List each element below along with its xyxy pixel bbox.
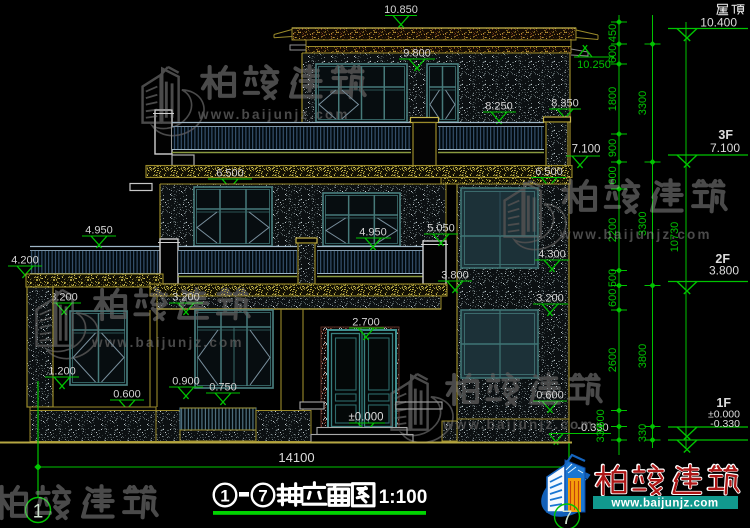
svg-text:14100: 14100 [278, 450, 314, 465]
svg-text:2600: 2600 [607, 348, 619, 372]
svg-text:0.600: 0.600 [113, 389, 141, 401]
svg-text:3.800: 3.800 [441, 270, 469, 282]
svg-text:2.700: 2.700 [352, 317, 380, 329]
svg-text:www.baijunjz.com: www.baijunjz.com [559, 227, 712, 242]
svg-text:8.250: 8.250 [485, 101, 513, 113]
svg-text:1800: 1800 [607, 87, 619, 111]
svg-text:900: 900 [607, 139, 619, 157]
svg-text:0.900: 0.900 [172, 376, 200, 388]
svg-text:500: 500 [607, 269, 619, 287]
svg-text:4.300: 4.300 [538, 249, 566, 261]
svg-text:www.baijunjz.com: www.baijunjz.com [197, 107, 350, 122]
svg-text:±0.000: ±0.000 [348, 412, 383, 424]
svg-text:4.950: 4.950 [359, 227, 387, 239]
svg-text:3300: 3300 [637, 91, 649, 115]
svg-text:450: 450 [607, 24, 619, 42]
svg-text:1.200: 1.200 [48, 366, 76, 378]
svg-text:6.500: 6.500 [535, 166, 563, 178]
svg-text:7: 7 [258, 487, 267, 506]
svg-text:8.350: 8.350 [551, 98, 579, 110]
svg-text:4.950: 4.950 [85, 225, 113, 237]
svg-text:4.200: 4.200 [11, 255, 39, 267]
svg-text:www.baijunjz.com: www.baijunjz.com [610, 498, 718, 510]
svg-text:600: 600 [607, 45, 619, 63]
svg-text:3.200: 3.200 [536, 293, 564, 305]
svg-text:7.100: 7.100 [710, 141, 740, 155]
svg-text:www.baijunjz.com: www.baijunjz.com [91, 335, 244, 350]
svg-text:www.baijunjz.com: www.baijunjz.com [442, 417, 595, 432]
svg-text:6.500: 6.500 [216, 168, 244, 180]
svg-text:9.800: 9.800 [403, 48, 431, 60]
svg-text:-0.330: -0.330 [710, 418, 740, 430]
svg-text:7: 7 [562, 508, 573, 528]
svg-text:7.100: 7.100 [572, 144, 601, 156]
svg-text:10.850: 10.850 [384, 4, 418, 16]
svg-text:600: 600 [607, 289, 619, 307]
svg-text:5.050: 5.050 [427, 223, 455, 235]
svg-text:3.800: 3.800 [709, 264, 739, 278]
svg-text:10.250: 10.250 [577, 59, 611, 71]
svg-text:1: 1 [220, 487, 229, 506]
svg-text:0.750: 0.750 [209, 382, 237, 394]
svg-text:10.400: 10.400 [700, 16, 737, 30]
svg-text:330: 330 [595, 424, 607, 442]
svg-text:3800: 3800 [637, 344, 649, 368]
svg-text:330: 330 [637, 424, 649, 442]
svg-text:3F: 3F [718, 128, 733, 142]
svg-text:1:100: 1:100 [379, 487, 428, 508]
